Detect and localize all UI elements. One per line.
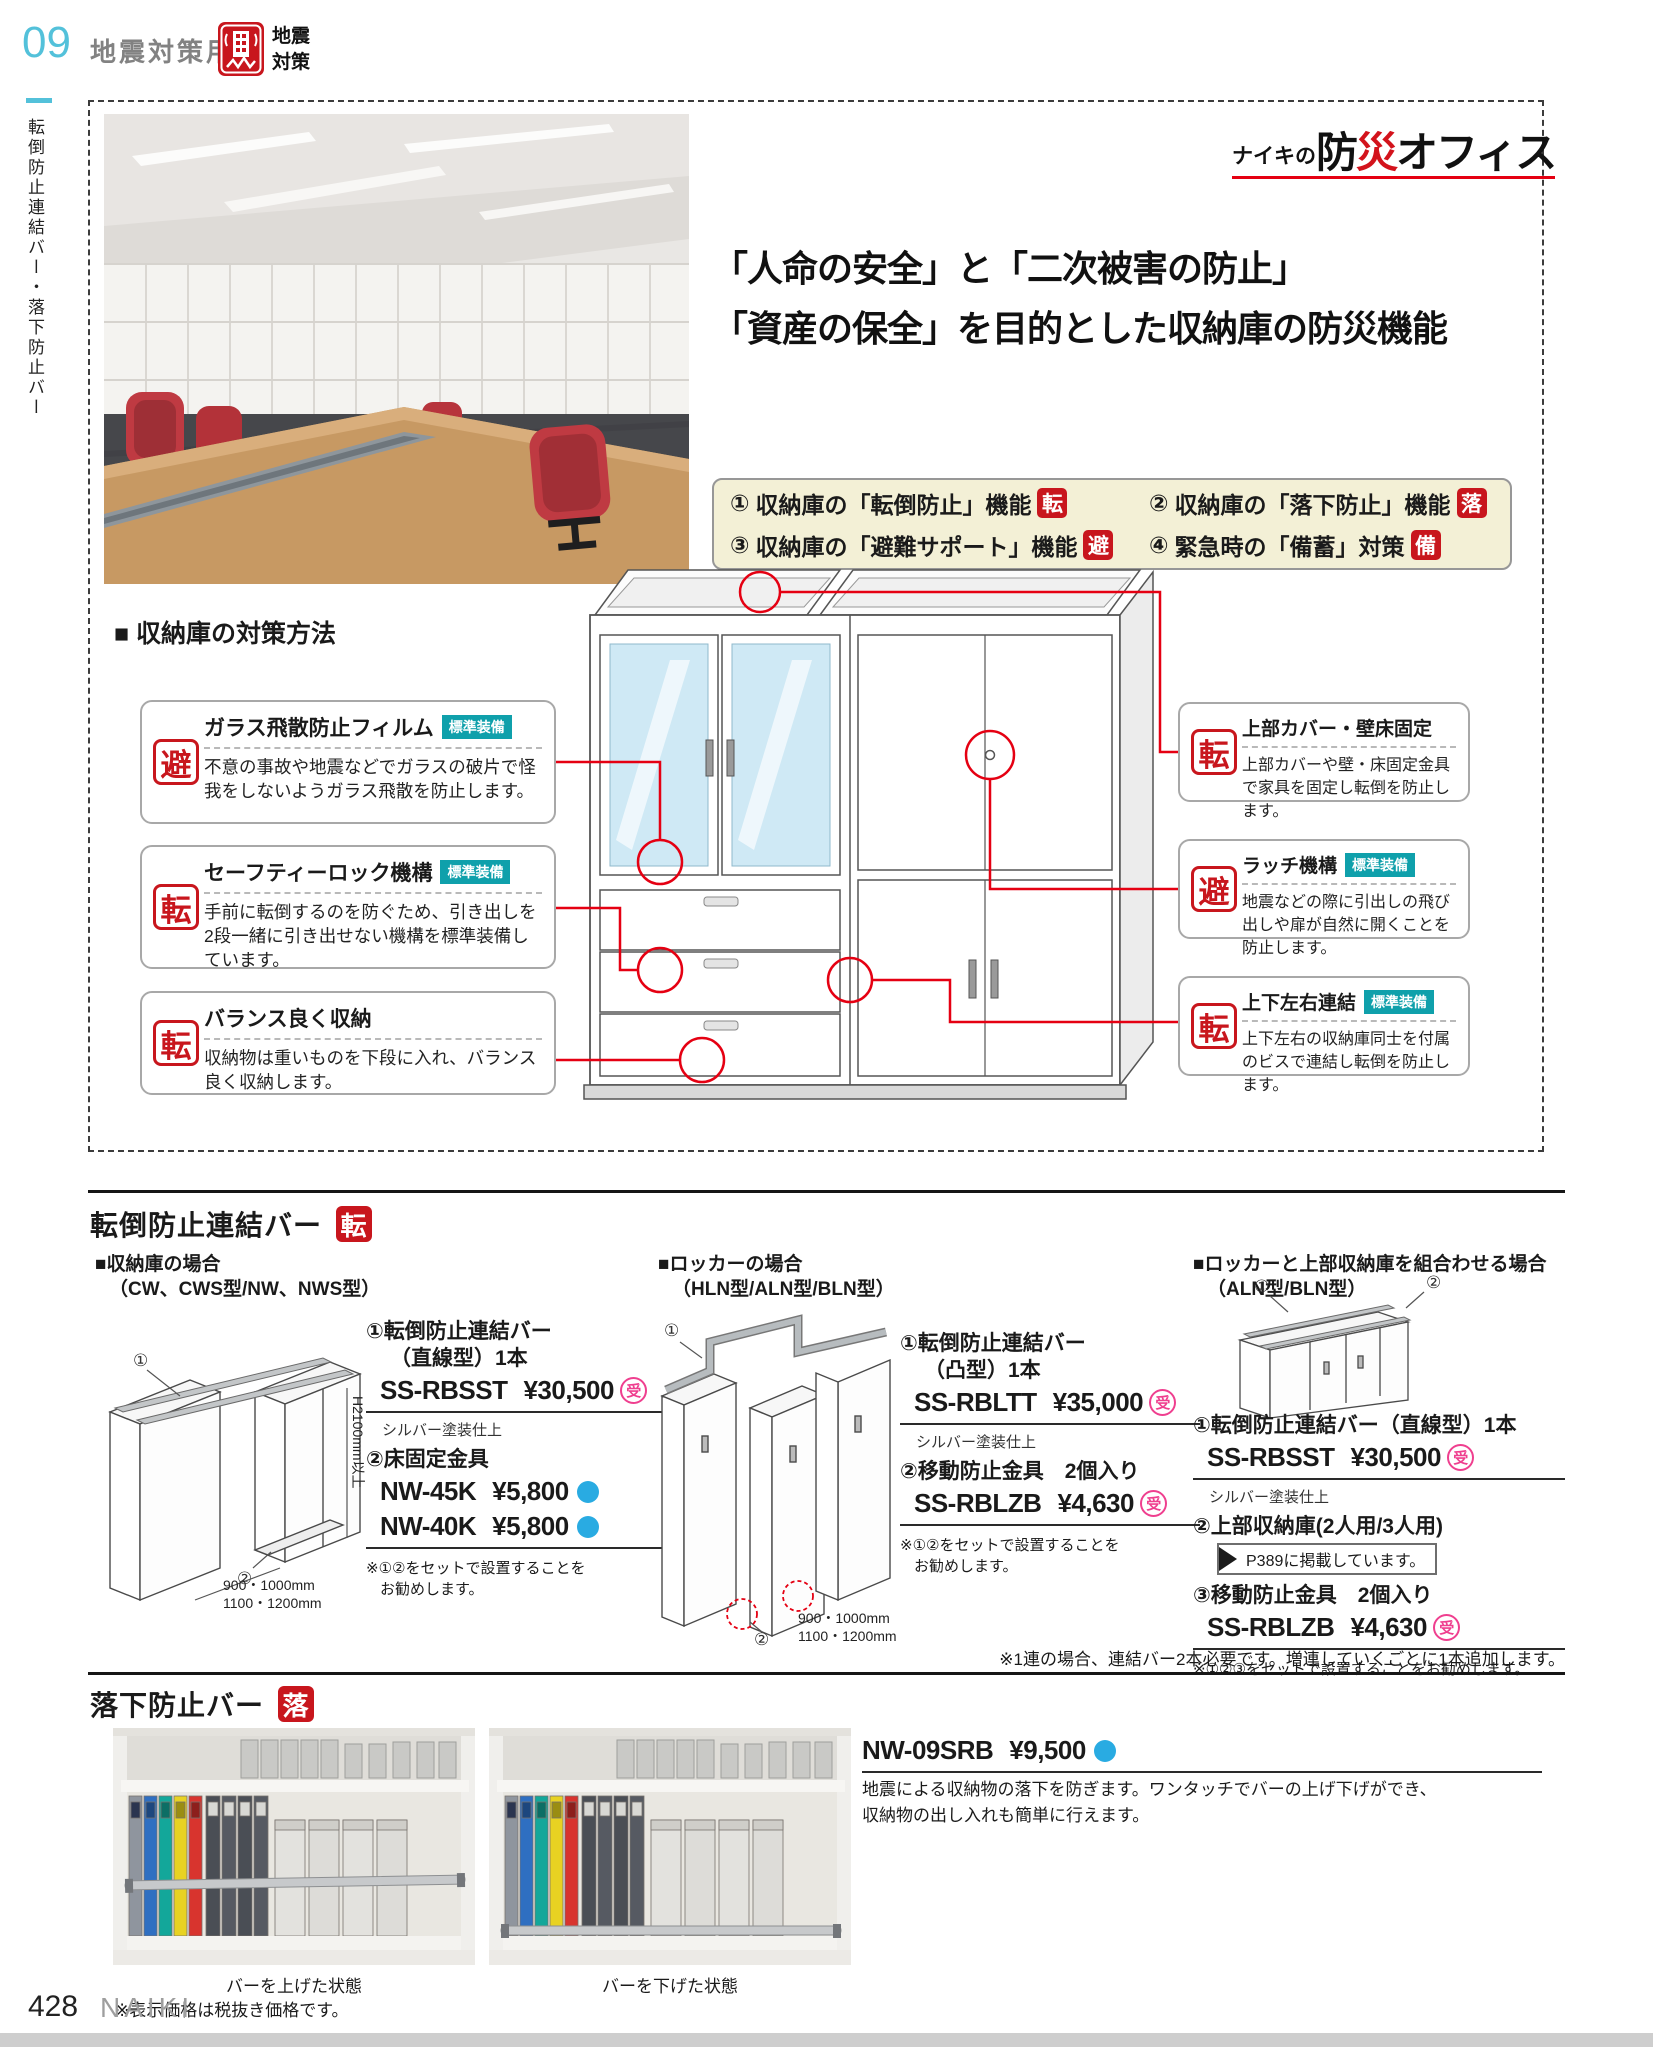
callout-body: 手前に転倒するのを防ぐため、引き出しを2段一緒に引き出せない機構を標準装備してい…	[204, 900, 542, 972]
section-rule	[88, 1190, 1565, 1193]
product-price: ¥30,500	[523, 1375, 613, 1406]
header-badge-label: 地震 対策	[272, 24, 310, 76]
office-photo	[104, 114, 689, 584]
callout-body: 地震などの際に引出しの飛び出しや扉が自然に開くことを防止します。	[1242, 891, 1456, 960]
product-price: ¥5,800	[492, 1476, 569, 1507]
product-desc-line1: 地震による収納物の落下を防ぎます。ワンタッチでバーの上げ下げができ、	[862, 1777, 1542, 1803]
diagram-label-1: ①	[664, 1321, 679, 1340]
order-mark: 受	[1140, 1490, 1167, 1517]
feature-label: 収納庫の「落下防止」機能	[1175, 486, 1451, 520]
dim-width2: 1100・1200mm	[223, 1595, 322, 1611]
case-heading-cabinet: ■収納庫の場合 （CW、CWS型/NW、NWS型）	[95, 1252, 380, 1302]
measures-heading: ■ 収納庫の対策方法	[114, 614, 336, 650]
bottom-gray-bar	[0, 2033, 1653, 2047]
product-price: ¥9,500	[1009, 1735, 1086, 1766]
item-name: ②床固定金具	[366, 1446, 664, 1473]
drop-section-title: 落下防止バー 落	[90, 1684, 314, 1724]
item-name: ①転倒防止連結バー	[366, 1318, 664, 1345]
earthquake-building-stamp-icon	[218, 22, 264, 76]
order-mark: 受	[620, 1377, 647, 1404]
diagram-label-2: ②	[1426, 1273, 1441, 1292]
product-code: SS-RBLZB	[1207, 1612, 1334, 1643]
callout-title: ガラス飛散防止フィルム	[204, 712, 434, 742]
drop-bar-product: NW-09SRB¥9,500 地震による収納物の落下を防ぎます。ワンタッチでバー…	[862, 1732, 1542, 1829]
callout-latch: 避 ラッチ機構標準装備 地震などの際に引出しの飛び出しや扉が自然に開くことを防止…	[1178, 839, 1470, 939]
price-row: SS-RBSST¥30,500受	[1193, 1439, 1565, 1480]
price-row: NW-09SRB¥9,500	[862, 1732, 1542, 1773]
finish-note: シルバー塗装仕上	[366, 1417, 664, 1446]
product-price: ¥35,000	[1053, 1387, 1143, 1418]
item-name: ②上部収納庫(2人用/3人用)	[1193, 1513, 1565, 1540]
ten-stamp-icon: 転	[153, 1020, 199, 1066]
callout-title: 上下左右連結	[1242, 988, 1356, 1015]
locker-bar-diagram: ① ② 900・1000mm 1100・1200mm	[650, 1296, 905, 1646]
naiki-bousai-office-logo: ナイキの 防 災 オフィス	[1232, 132, 1555, 179]
cabinet-bar-diagram: ① ② H2100mm以上 900・1000mm 1100・1200mm	[95, 1300, 367, 1612]
hi-stamp-icon: 避	[1191, 866, 1237, 912]
ten-stamp-icon: 転	[1191, 1003, 1237, 1049]
product-code: SS-RBSST	[1207, 1442, 1334, 1473]
finish-note: シルバー塗装仕上	[1193, 1484, 1565, 1513]
price-row: SS-RBLZB¥4,630受	[1193, 1609, 1565, 1650]
set-note: ※①②をセットで設置することをお勧めします。	[900, 1530, 1200, 1577]
callout-safety-lock: 転 セーフティーロック機構標準装備 手前に転倒するのを防ぐため、引き出しを2段一…	[140, 845, 556, 969]
callout-body: 収納物は重いものを下段に入れ、バランス良く収納します。	[204, 1046, 542, 1094]
dim-height: H2100mm以上	[350, 1396, 366, 1489]
stock-dot-icon	[577, 1481, 599, 1503]
ten-stamp-icon: 転	[336, 1206, 372, 1242]
product-code: NW-09SRB	[862, 1735, 993, 1766]
section-rule	[88, 1672, 1565, 1675]
feature-item-2: ②収納庫の「落下防止」機能落	[1149, 486, 1506, 520]
product-desc-line2: 収納物の出し入れも簡単に行えます。	[862, 1803, 1542, 1829]
raku-stamp-icon: 落	[1457, 488, 1487, 518]
product-col1: ①転倒防止連結バー （直線型）1本 SS-RBSST¥30,500受 シルバー塗…	[366, 1318, 664, 1600]
product-price: ¥5,800	[492, 1511, 569, 1542]
item-name: ①転倒防止連結バー（直線型）1本	[1193, 1412, 1565, 1439]
set-note-line2: お勧めします。	[366, 1579, 664, 1600]
item-name: ③移動防止金具 2個入り	[1193, 1582, 1565, 1609]
product-code: SS-RBSST	[380, 1375, 507, 1406]
callout-glass-film: 避 ガラス飛散防止フィルム標準装備 不意の事故や地震などでガラスの破片で怪我をし…	[140, 700, 556, 824]
logo-prefix: ナイキの	[1232, 140, 1316, 174]
combo-bar-diagram: ① ②	[1228, 1270, 1463, 1420]
bar-section-footnote: ※1連の場合、連結バー2本必要です。増連していくごとに1本追加します。	[600, 1645, 1565, 1670]
bar-section-title-text: 転倒防止連結バー	[90, 1204, 322, 1244]
feature-num: ②	[1149, 490, 1168, 517]
photo-caption-bar-down: バーを下げた状態	[489, 1972, 851, 1997]
diagram-label-2: ②	[754, 1630, 769, 1646]
hi-stamp-icon: 避	[153, 739, 199, 785]
stock-dot-icon	[577, 1516, 599, 1538]
set-note-line1: ※①②をセットで設置することを	[900, 1535, 1200, 1556]
order-mark: 受	[1433, 1614, 1460, 1641]
feature-item-1: ①収納庫の「転倒防止」機能転	[730, 486, 1149, 520]
page-number: 428	[28, 1990, 78, 2024]
standard-badge: 標準装備	[442, 715, 512, 739]
diagram-label-1: ①	[133, 1351, 148, 1370]
callout-linking: 転 上下左右連結標準装備 上下左右の収納庫同士を付属のビスで連結し転倒を防止しま…	[1178, 976, 1470, 1076]
header-badge-line2: 対策	[272, 50, 310, 76]
catalog-page: 09 地震対策用品 地震 対策 転倒防止連結バー・落下防止バー	[0, 0, 1653, 2047]
standard-badge: 標準装備	[440, 860, 510, 884]
product-code: SS-RBLZB	[914, 1488, 1041, 1519]
case-heading-locker: ■ロッカーの場合 （HLN型/ALN型/BLN型）	[658, 1252, 895, 1302]
standard-badge: 標準装備	[1345, 853, 1415, 877]
ten-stamp-icon: 転	[1037, 488, 1067, 518]
product-price: ¥4,630	[1057, 1488, 1134, 1519]
logo-bou: 防	[1316, 132, 1356, 174]
product-price: ¥30,500	[1350, 1442, 1440, 1473]
ref-arrow-icon	[1219, 1547, 1237, 1571]
order-mark: 受	[1447, 1444, 1474, 1471]
product-col2: ①転倒防止連結バー （凸型）1本 SS-RBLTT¥35,000受 シルバー塗装…	[900, 1330, 1200, 1577]
section-number: 09	[22, 18, 71, 68]
callout-title: セーフティーロック機構	[204, 857, 432, 887]
ten-stamp-icon: 転	[153, 884, 199, 930]
callout-title: 上部カバー・壁床固定	[1242, 714, 1432, 741]
cabinet-measures-diagram	[520, 540, 1180, 1125]
product-code: SS-RBLTT	[914, 1387, 1037, 1418]
product-price: ¥4,630	[1350, 1612, 1427, 1643]
price-row: NW-45K¥5,800	[366, 1473, 664, 1508]
callout-title: ラッチ機構	[1242, 851, 1337, 878]
standard-badge: 標準装備	[1364, 990, 1434, 1014]
callout-body: 不意の事故や地震などでガラスの破片で怪我をしないようガラス飛散を防止します。	[204, 755, 542, 803]
dim-width1: 900・1000mm	[223, 1577, 315, 1593]
shelf-photo-bar-down	[489, 1728, 851, 1965]
price-row: SS-RBLZB¥4,630受	[900, 1485, 1200, 1526]
shelf-photo-bar-up	[113, 1728, 475, 1965]
product-col3: ①転倒防止連結バー（直線型）1本 SS-RBSST¥30,500受 シルバー塗装…	[1193, 1412, 1565, 1680]
headline-line1: 「人命の安全」と「二次被害の防止」	[712, 240, 1307, 292]
item-name: ②移動防止金具 2個入り	[900, 1458, 1200, 1485]
case-line1: ■ロッカーの場合	[658, 1252, 895, 1277]
callout-body: 上下左右の収納庫同士を付属のビスで連結し転倒を防止します。	[1242, 1028, 1456, 1097]
feature-num: ①	[730, 490, 749, 517]
item-name2: （凸型）1本	[900, 1357, 1200, 1384]
ref-text: P389に掲載しています。	[1246, 1547, 1425, 1571]
price-row: SS-RBLTT¥35,000受	[900, 1384, 1200, 1425]
case-line2: （CW、CWS型/NW、NWS型）	[95, 1277, 380, 1302]
product-code: NW-45K	[380, 1476, 476, 1507]
product-code: NW-40K	[380, 1511, 476, 1542]
price-row: SS-RBSST¥30,500受	[366, 1372, 664, 1413]
feature-item-4: ④緊急時の「備蓄」対策備	[1149, 528, 1506, 562]
headline-line2: 「資産の保全」を目的とした収納庫の防災機能	[712, 300, 1447, 352]
item-name: ①転倒防止連結バー	[900, 1330, 1200, 1357]
callout-top-cover: 転 上部カバー・壁床固定 上部カバーや壁・床固定金具で家具を固定し転倒を防止しま…	[1178, 702, 1470, 802]
set-note: ※①②をセットで設置することをお勧めします。	[366, 1553, 664, 1600]
price-row: NW-40K¥5,800	[366, 1508, 664, 1549]
feature-label: 収納庫の「転倒防止」機能	[755, 486, 1031, 520]
feature-label: 緊急時の「備蓄」対策	[1175, 528, 1405, 562]
case-line1: ■収納庫の場合	[95, 1252, 380, 1277]
finish-note: シルバー塗装仕上	[900, 1429, 1200, 1458]
callout-balanced-storage: 転 バランス良く収納 収納物は重いものを下段に入れ、バランス良く収納します。	[140, 991, 556, 1095]
ten-stamp-icon: 転	[1191, 729, 1237, 775]
set-note-line2: お勧めします。	[900, 1556, 1200, 1577]
stock-dot-icon	[1094, 1740, 1116, 1762]
callout-title: バランス良く収納	[204, 1003, 372, 1033]
page-reference-box: P389に掲載しています。	[1217, 1543, 1437, 1575]
brand-name: NAIKI	[100, 1992, 193, 2024]
callout-body: 上部カバーや壁・床固定金具で家具を固定し転倒を防止します。	[1242, 754, 1456, 823]
header-badge-line1: 地震	[272, 24, 310, 50]
item-name2: （直線型）1本	[366, 1345, 664, 1372]
sidebar-vertical-label: 転倒防止連結バー・落下防止バー	[22, 118, 47, 598]
order-mark: 受	[1149, 1389, 1176, 1416]
diagram-label-1: ①	[1254, 1277, 1269, 1296]
raku-stamp-icon: 落	[278, 1686, 314, 1722]
bar-section-title: 転倒防止連結バー 転	[90, 1204, 372, 1244]
drop-section-title-text: 落下防止バー	[90, 1684, 264, 1724]
dim-width2: 1100・1200mm	[798, 1628, 897, 1644]
set-note-line1: ※①②をセットで設置することを	[366, 1558, 664, 1579]
logo-office: オフィス	[1396, 132, 1555, 174]
bi-stamp-icon: 備	[1411, 530, 1441, 560]
dim-width1: 900・1000mm	[798, 1610, 890, 1626]
section-dash	[26, 98, 52, 103]
logo-sai: 災	[1356, 132, 1396, 174]
